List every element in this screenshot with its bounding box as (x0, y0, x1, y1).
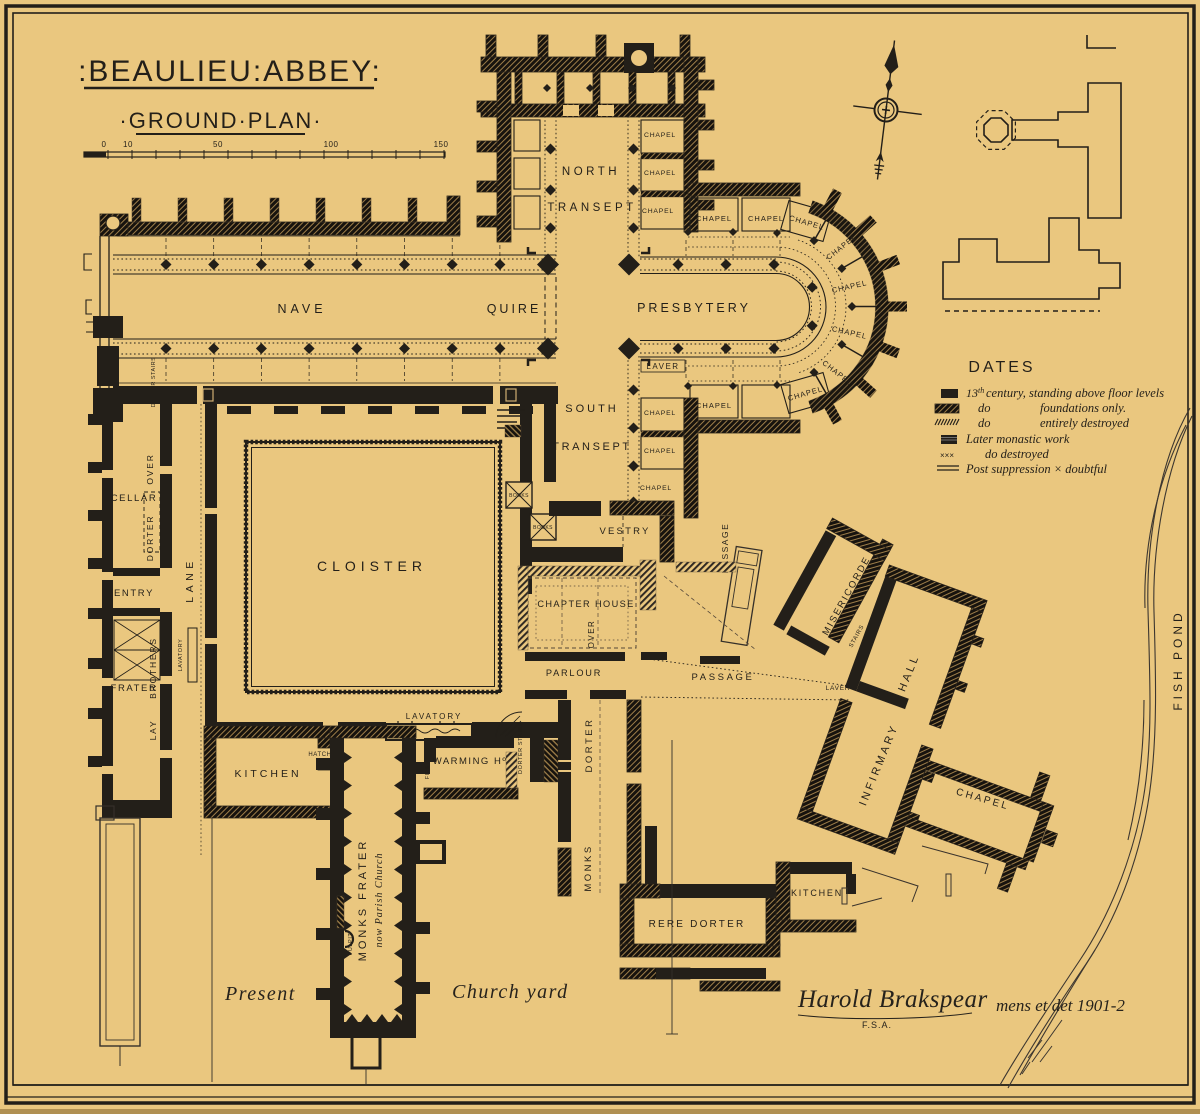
svg-text:FIRE: FIRE (425, 765, 431, 780)
svg-text:LAVATORY: LAVATORY (406, 712, 463, 721)
svg-text:DATES: DATES (968, 359, 1035, 376)
svg-text:CELLAR: CELLAR (111, 493, 158, 504)
svg-text:NAVE: NAVE (277, 302, 326, 316)
svg-text:MONKS FRATER: MONKS FRATER (357, 839, 369, 962)
svg-text:LAVATORY: LAVATORY (178, 639, 184, 672)
svg-text:PASSAGE: PASSAGE (692, 672, 755, 683)
svg-text:ENTRY: ENTRY (114, 588, 154, 599)
svg-text:WARMING Hº: WARMING Hº (433, 756, 508, 767)
svg-text:PRESBYTERY: PRESBYTERY (637, 301, 751, 315)
svg-text:CHAPEL: CHAPEL (696, 401, 732, 410)
svg-text:CHAPEL: CHAPEL (696, 214, 732, 223)
svg-text:Present: Present (224, 983, 296, 1005)
svg-text:BOOKS: BOOKS (509, 493, 529, 499)
svg-text:mens et det 1901-2: mens et det 1901-2 (996, 996, 1125, 1015)
svg-text:CHAPEL: CHAPEL (644, 410, 676, 417)
svg-text:PARLOUR: PARLOUR (546, 668, 602, 678)
svg-text:OVER: OVER (587, 620, 596, 649)
svg-text:Post suppression × doubtful: Post suppression × doubtful (965, 462, 1107, 476)
svg-text:do: do (978, 416, 991, 430)
svg-text:QUIRE: QUIRE (487, 302, 542, 316)
svg-text:CHAPEL: CHAPEL (644, 170, 676, 177)
svg-text:FISH POND: FISH POND (1171, 609, 1185, 710)
svg-text:PULPIT: PULPIT (348, 933, 354, 956)
svg-text:VESTRY: VESTRY (599, 526, 650, 537)
svg-text:CHAPEL: CHAPEL (642, 208, 674, 215)
svg-text:foundations only.: foundations only. (1040, 401, 1126, 415)
svg-text:CHAPEL: CHAPEL (640, 485, 672, 492)
svg-text:do destroyed: do destroyed (985, 447, 1050, 461)
svg-text:CLOISTER: CLOISTER (317, 558, 427, 574)
svg-text::BEAULIEU:ABBEY:: :BEAULIEU:ABBEY: (78, 55, 382, 88)
svg-text:CHAPEL: CHAPEL (644, 448, 676, 455)
svg-text:×××: ××× (940, 451, 954, 460)
svg-text:150: 150 (434, 140, 449, 149)
svg-text:LANE: LANE (184, 557, 196, 602)
svg-text:0: 0 (102, 140, 107, 149)
svg-text:KITCHEN: KITCHEN (791, 888, 843, 898)
svg-text:SOUTH: SOUTH (565, 403, 619, 415)
svg-text:MONKS: MONKS (583, 844, 594, 891)
svg-text:entirely destroyed: entirely destroyed (1040, 416, 1130, 430)
svg-text:Later monastic work: Later monastic work (965, 432, 1070, 446)
svg-text:10: 10 (123, 140, 133, 149)
svg-text:LAVER: LAVER (646, 362, 679, 371)
svg-text:·GROUND·PLAN·: ·GROUND·PLAN· (119, 108, 322, 133)
svg-text:CHAPTER HOUSE: CHAPTER HOUSE (537, 599, 634, 609)
svg-text:th: th (978, 386, 984, 395)
svg-text:Church yard: Church yard (452, 981, 569, 1003)
svg-text:CHAPEL: CHAPEL (644, 132, 676, 139)
svg-text:RERE DORTER: RERE DORTER (649, 919, 746, 930)
svg-text:century, standing above floor: century, standing above floor levels (986, 386, 1164, 400)
svg-text:DORTER: DORTER (145, 515, 155, 562)
svg-text:KITCHEN: KITCHEN (234, 768, 301, 780)
svg-text:Harold Brakspear: Harold Brakspear (797, 986, 988, 1013)
svg-text:BOOKS: BOOKS (533, 525, 553, 531)
svg-text:CHAPEL: CHAPEL (748, 214, 784, 223)
svg-text:DORTER STAIRS: DORTER STAIRS (518, 722, 524, 774)
svg-text:50: 50 (213, 140, 223, 149)
svg-text:do: do (978, 401, 991, 415)
svg-text:TRANSEPT: TRANSEPT (547, 202, 636, 214)
svg-text:100: 100 (324, 140, 339, 149)
svg-text:F.S.A.: F.S.A. (862, 1020, 892, 1030)
svg-text:13: 13 (966, 386, 978, 400)
svg-text:LAY: LAY (148, 720, 158, 741)
svg-text:DORTER: DORTER (584, 718, 595, 773)
svg-text:NORTH: NORTH (562, 166, 620, 178)
svg-text:HATCH: HATCH (308, 752, 331, 758)
svg-text:now Parish Church: now Parish Church (374, 853, 385, 948)
svg-text:OVER: OVER (145, 453, 155, 484)
svg-text:BROTHERS: BROTHERS (148, 637, 158, 699)
svg-text:TRANSEPT: TRANSEPT (552, 441, 631, 453)
